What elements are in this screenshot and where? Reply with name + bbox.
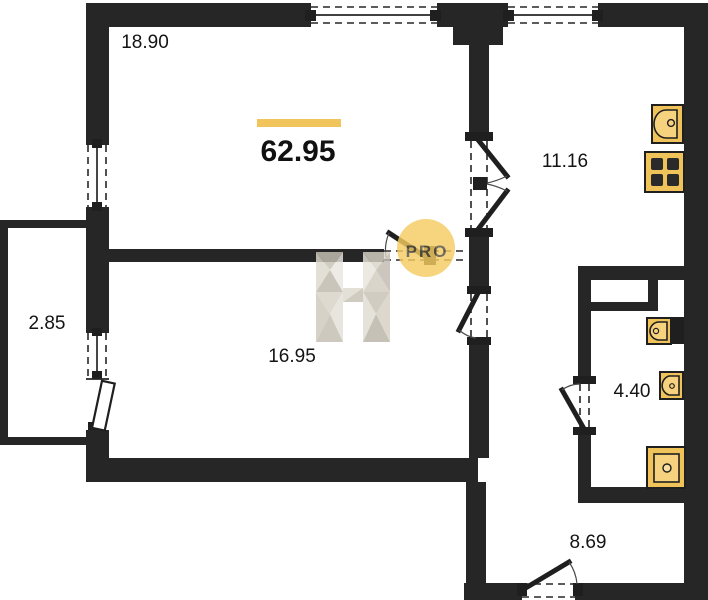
door-bathroom xyxy=(562,376,596,435)
room-label-living: 18.90 xyxy=(121,32,169,53)
toilet-icon xyxy=(647,317,684,344)
watermark: PRO xyxy=(316,219,455,342)
floorplan-svg: 62.95 18.90 16.95 11.16 4.40 8.69 2.85 xyxy=(0,0,708,600)
washbasin-icon xyxy=(660,372,683,399)
window-balcony xyxy=(88,328,106,379)
window-top-right xyxy=(503,7,603,23)
room-label-balcony: 2.85 xyxy=(29,313,66,334)
door-double-kitchen xyxy=(465,132,507,237)
room-label-hallway: 8.69 xyxy=(570,532,607,553)
watermark-letter-h xyxy=(316,252,390,342)
watermark-pro-label: PRO xyxy=(406,242,449,261)
door-bedroom xyxy=(459,286,491,345)
kitchen-sink-icon xyxy=(652,105,683,143)
door-entrance xyxy=(517,562,583,597)
stove-icon xyxy=(645,152,684,192)
room-label-bedroom: 16.95 xyxy=(268,346,316,367)
door-balcony xyxy=(86,379,115,430)
window-left-living xyxy=(88,139,106,211)
floorplan-canvas: 62.95 18.90 16.95 11.16 4.40 8.69 2.85 xyxy=(0,0,708,600)
shower-icon xyxy=(647,447,685,488)
total-area-highlight xyxy=(257,119,341,127)
total-area-label: 62.95 xyxy=(260,135,335,168)
window-top-left xyxy=(305,7,441,23)
room-label-kitchen: 11.16 xyxy=(542,151,588,172)
room-label-bathroom: 4.40 xyxy=(614,381,651,402)
